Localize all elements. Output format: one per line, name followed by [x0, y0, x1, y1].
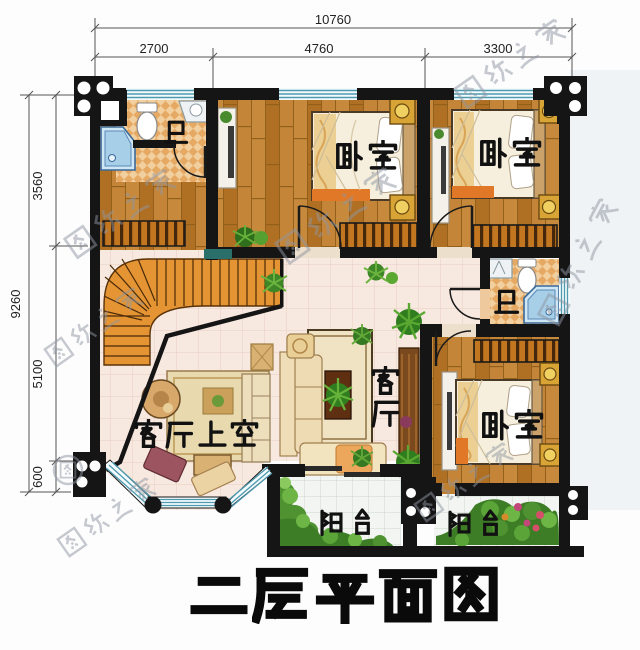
svg-text:9260: 9260 — [8, 290, 23, 319]
svg-text:3300: 3300 — [484, 41, 513, 56]
svg-text:2700: 2700 — [140, 41, 169, 56]
svg-text:3560: 3560 — [30, 172, 45, 201]
svg-text:10760: 10760 — [315, 12, 351, 27]
svg-text:600: 600 — [30, 466, 45, 488]
svg-text:4760: 4760 — [305, 41, 334, 56]
svg-text:5100: 5100 — [30, 360, 45, 389]
